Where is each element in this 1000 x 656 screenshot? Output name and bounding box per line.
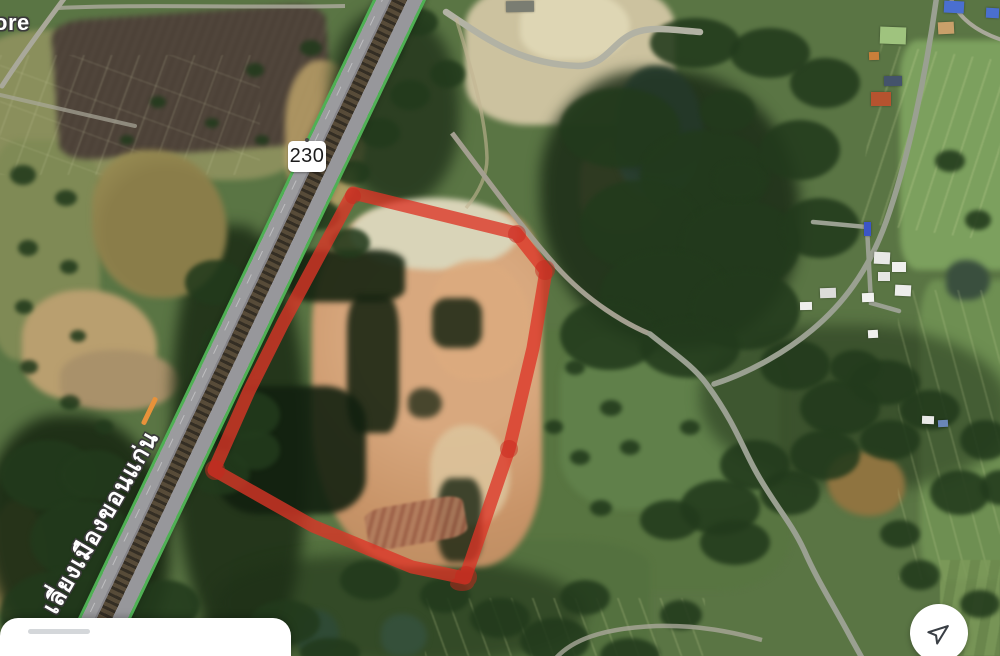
land-plot-outline <box>0 0 1000 656</box>
bottom-sheet[interactable] <box>0 618 291 656</box>
route-number: 230 <box>290 145 325 168</box>
route-shield-230: 230 <box>288 141 326 172</box>
navigate-button[interactable] <box>910 604 968 656</box>
navigation-arrow-icon <box>922 614 958 650</box>
map-canvas[interactable]: 230 เลี่ยงเมืองขอนแก่น ore <box>0 0 1000 656</box>
drag-handle[interactable] <box>28 629 90 634</box>
explore-partial-label: ore <box>0 10 30 36</box>
